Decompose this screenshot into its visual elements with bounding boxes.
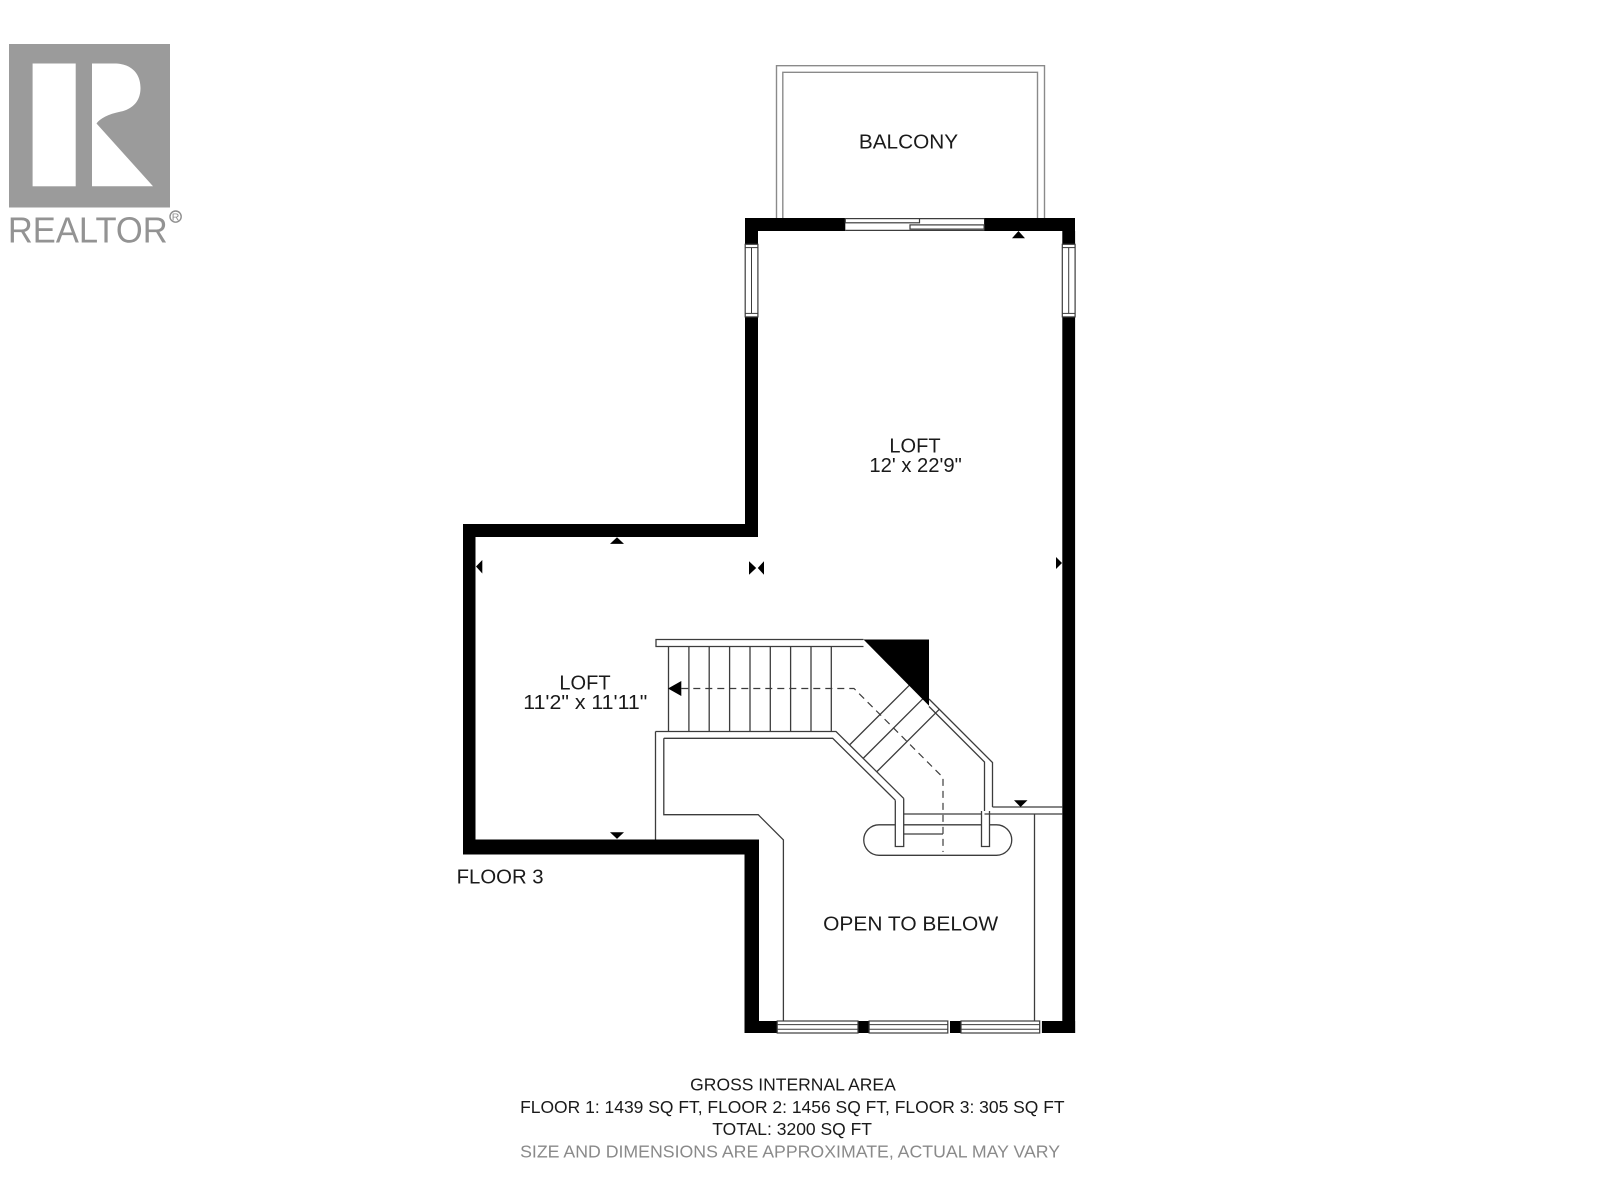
svg-text:REALTOR: REALTOR (8, 210, 168, 251)
svg-text:BALCONY: BALCONY (859, 130, 959, 153)
svg-text:11'2" x 11'11": 11'2" x 11'11" (523, 691, 647, 714)
svg-text:OPEN TO BELOW: OPEN TO BELOW (823, 912, 999, 935)
svg-text:FLOOR 3: FLOOR 3 (457, 866, 544, 889)
svg-text:R: R (172, 211, 180, 223)
svg-text:SIZE AND DIMENSIONS ARE APPROX: SIZE AND DIMENSIONS ARE APPROXIMATE, ACT… (520, 1142, 1060, 1162)
svg-text:TOTAL: 3200 SQ FT: TOTAL: 3200 SQ FT (712, 1119, 872, 1139)
svg-text:12' x 22'9": 12' x 22'9" (869, 454, 962, 477)
svg-text:GROSS INTERNAL AREA: GROSS INTERNAL AREA (690, 1075, 896, 1095)
svg-text:FLOOR 1: 1439 SQ FT, FLOOR 2:: FLOOR 1: 1439 SQ FT, FLOOR 2: 1456 SQ FT… (520, 1097, 1065, 1117)
